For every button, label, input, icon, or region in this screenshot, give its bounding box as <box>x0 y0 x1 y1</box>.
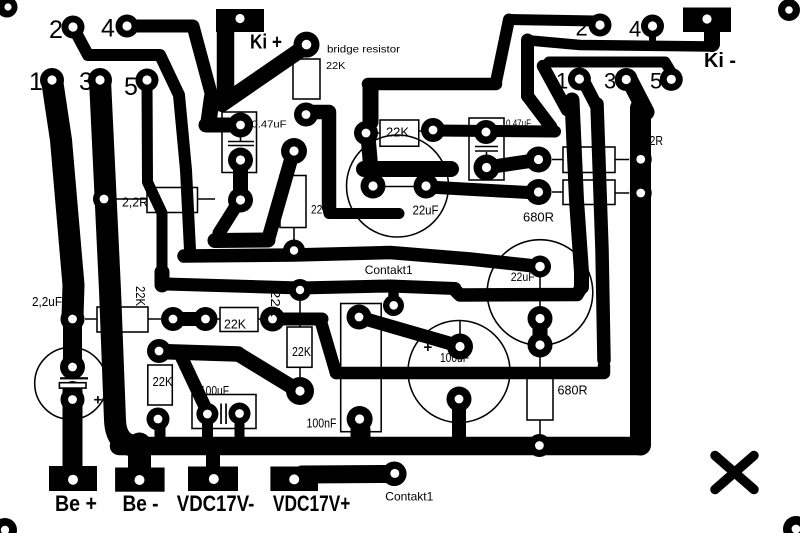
svg-text:2: 2 <box>576 16 588 41</box>
svg-text:Ki -: Ki - <box>704 50 736 72</box>
svg-text:Contakt1: Contakt1 <box>385 490 433 504</box>
svg-text:22K: 22K <box>326 60 346 72</box>
svg-text:22K: 22K <box>268 290 283 317</box>
svg-text:100nF: 100nF <box>307 417 337 431</box>
svg-text:5: 5 <box>124 73 138 101</box>
svg-text:3: 3 <box>604 69 616 94</box>
svg-text:2,2uF: 2,2uF <box>32 294 62 309</box>
svg-text:22K: 22K <box>386 125 409 140</box>
svg-text:100uF: 100uF <box>440 351 469 365</box>
svg-text:bridge resistor: bridge resistor <box>327 44 401 56</box>
svg-text:22K: 22K <box>224 317 246 332</box>
svg-text:VDC17V-: VDC17V- <box>177 491 255 516</box>
svg-text:0.47uF: 0.47uF <box>252 119 287 131</box>
svg-text:680R: 680R <box>558 383 588 398</box>
svg-text:22uF: 22uF <box>413 204 439 218</box>
svg-text:22K: 22K <box>153 374 173 389</box>
svg-text:5: 5 <box>650 69 662 94</box>
svg-text:22K: 22K <box>311 203 329 217</box>
svg-text:2,2R: 2,2R <box>122 195 148 210</box>
svg-text:Be +: Be + <box>55 491 97 516</box>
svg-text:1: 1 <box>29 68 43 96</box>
svg-text:4: 4 <box>101 15 115 43</box>
svg-text:22uF: 22uF <box>511 270 535 284</box>
svg-text:1: 1 <box>556 69 568 94</box>
svg-text:0,47uF: 0,47uF <box>506 118 531 130</box>
svg-text:Contakt1: Contakt1 <box>365 263 413 277</box>
svg-text:Be -: Be - <box>123 491 159 516</box>
svg-text:680R: 680R <box>523 210 554 225</box>
svg-text:3: 3 <box>79 68 93 96</box>
svg-text:2R: 2R <box>650 133 664 148</box>
svg-text:22K: 22K <box>292 344 311 359</box>
svg-text:VDC17V+: VDC17V+ <box>273 491 351 516</box>
svg-text:Ki +: Ki + <box>250 32 282 54</box>
svg-text:100uF: 100uF <box>200 384 229 398</box>
svg-text:2: 2 <box>49 16 63 44</box>
svg-text:+: + <box>94 392 103 409</box>
svg-text:22K: 22K <box>133 286 148 306</box>
svg-text:4: 4 <box>629 17 641 42</box>
svg-text:+: + <box>424 339 433 356</box>
